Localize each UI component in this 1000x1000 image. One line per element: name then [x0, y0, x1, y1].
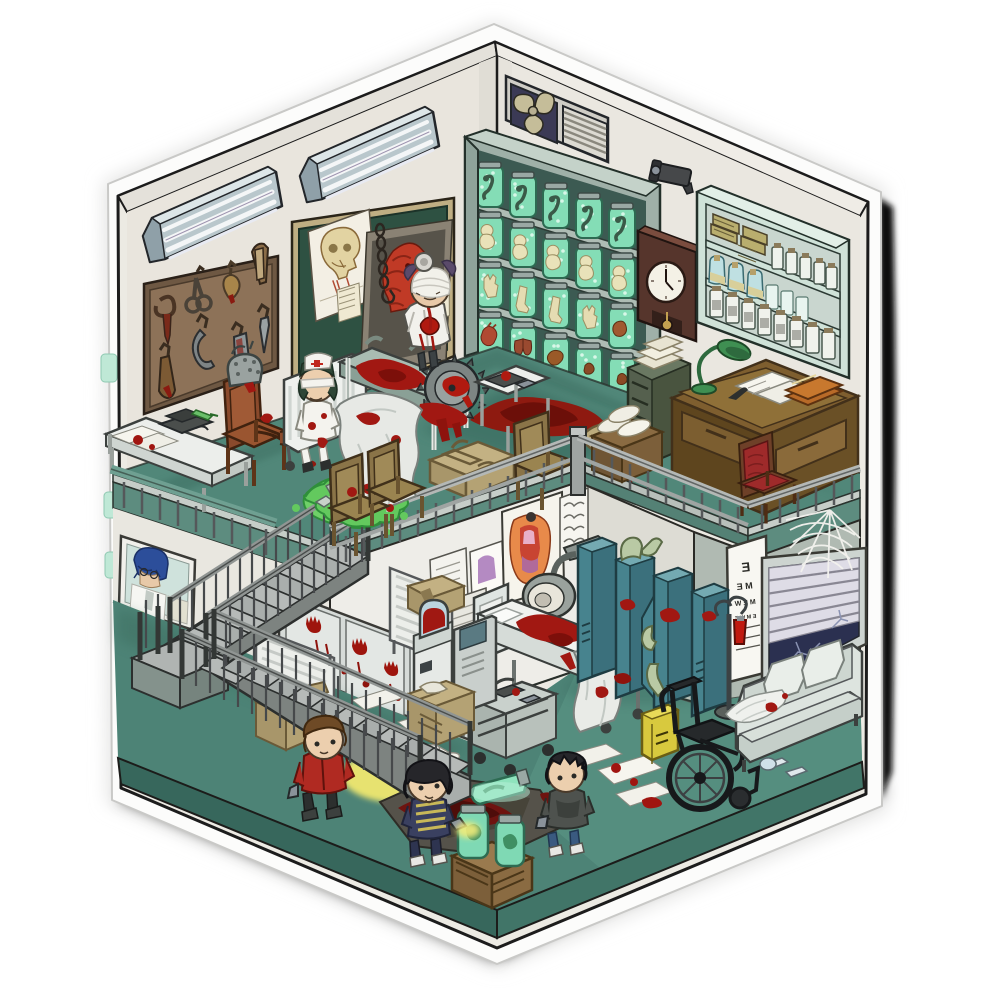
- svg-text:Ǝ M: Ǝ M: [736, 580, 753, 592]
- svg-text:Ǝ: Ǝ: [741, 559, 751, 575]
